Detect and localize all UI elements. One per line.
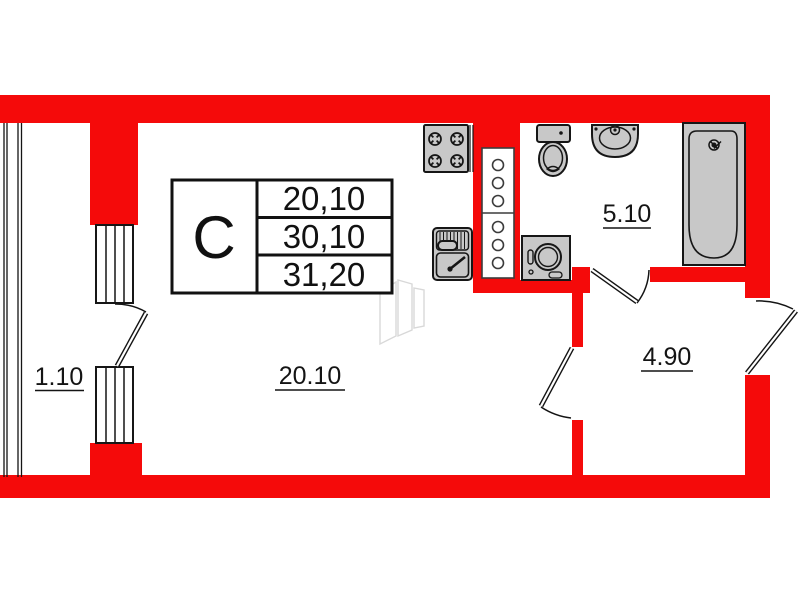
- living-area-label: 20.10: [279, 362, 342, 390]
- basin-corner-dot: [632, 127, 635, 130]
- wash-basin-icon: [592, 125, 638, 157]
- bathtub-icon: [683, 123, 745, 265]
- bathroom-area-label: 5.10: [603, 200, 652, 228]
- wall-bath-bottom: [650, 267, 770, 282]
- washing-machine-icon: [522, 236, 570, 280]
- door-swing-arc: [756, 301, 793, 309]
- door-leaf-inner: [117, 313, 146, 366]
- basin-corner-dot: [594, 127, 597, 130]
- balcony-area-label: 1.10: [35, 363, 84, 391]
- door-swing-arc: [637, 270, 649, 303]
- wall-bottom: [0, 475, 770, 498]
- door-leaf-inner: [592, 270, 637, 302]
- shaft-hole: [493, 178, 504, 189]
- unit-type-label: С: [192, 204, 235, 271]
- shaft-hole: [493, 258, 504, 269]
- door-leaf-inner: [541, 348, 572, 406]
- ventilation-shaft: [482, 148, 514, 278]
- door-swing-arc: [541, 407, 571, 418]
- wall-hall-upper: [572, 293, 583, 347]
- floor-plan: С 20,10 30,10 31,20 1.10 20.10 5.10 4.90: [0, 0, 800, 600]
- toilet-button: [559, 131, 563, 135]
- unit-area-main: 30,10: [283, 218, 366, 255]
- entry-door: [747, 301, 796, 373]
- wall-bath-corner: [572, 267, 590, 293]
- basin-faucet-dot: [613, 128, 616, 131]
- unit-area-living: 20,10: [283, 180, 366, 217]
- balcony-windows: [96, 225, 133, 443]
- wall-pier-left-bottom: [90, 443, 142, 477]
- unit-area-total: 31,20: [283, 256, 366, 293]
- unit-info-table: С 20,10 30,10 31,20: [172, 180, 392, 293]
- shaft-hole: [493, 160, 504, 171]
- watermark-shape: [398, 280, 412, 336]
- shaft-hole: [493, 222, 504, 233]
- bathroom-door: [592, 270, 649, 303]
- shaft-hole: [493, 196, 504, 207]
- hallway-area-label: 4.90: [643, 343, 692, 371]
- toilet-icon: [537, 125, 570, 176]
- toilet-tank: [537, 125, 570, 142]
- floor-plan-drawing: С 20,10 30,10 31,20 1.10 20.10 5.10 4.90: [0, 0, 800, 600]
- balcony-door: [115, 304, 146, 366]
- balcony-glazing: [4, 123, 22, 477]
- watermark-shape: [414, 288, 424, 328]
- kitchen-sink-icon: [433, 228, 472, 280]
- living-room-door: [541, 348, 572, 418]
- wall-hall-lower: [572, 420, 583, 477]
- stove-icon: [424, 125, 473, 172]
- door-leaf-inner: [747, 311, 796, 373]
- shaft-hole: [493, 240, 504, 251]
- sink-small-bowl: [438, 241, 457, 250]
- wall-pier-left-top: [90, 95, 138, 225]
- door-swing-arc: [115, 304, 146, 312]
